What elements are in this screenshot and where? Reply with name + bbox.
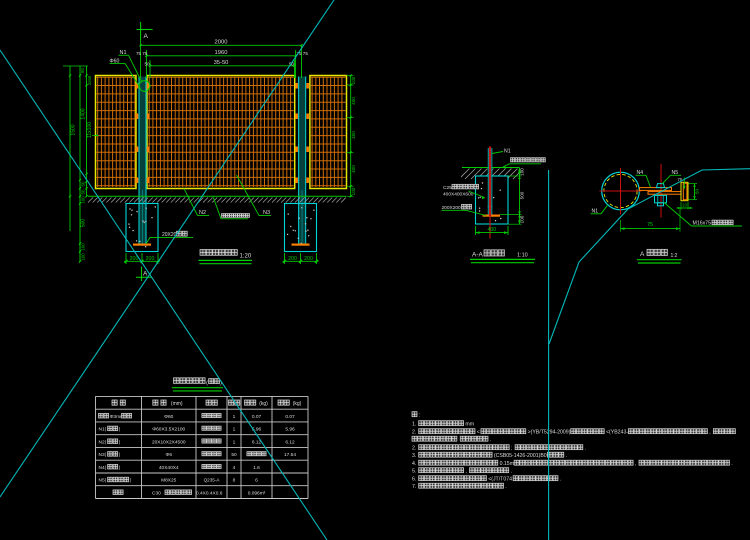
svg-text:50: 50 <box>81 189 86 194</box>
svg-text:Φ60X3.5X2100: Φ60X3.5X2100 <box>152 427 185 433</box>
svg-text:N2: N2 <box>199 210 206 216</box>
svg-text::: : <box>419 413 420 419</box>
svg-text:50: 50 <box>695 189 700 195</box>
svg-text:;: ; <box>511 446 512 452</box>
svg-text:4.: 4. <box>412 461 416 467</box>
svg-text:N1(: N1( <box>99 427 107 433</box>
svg-text:2x50: 2x50 <box>87 75 92 85</box>
svg-text:Φ6: Φ6 <box>166 452 173 458</box>
svg-text:200: 200 <box>304 256 313 262</box>
svg-text:6.12: 6.12 <box>285 439 295 445</box>
svg-text:.: . <box>560 477 561 483</box>
svg-text:400: 400 <box>351 165 356 173</box>
svg-text:(CSB05-1426-2001)B01: (CSB05-1426-2001)B01 <box>494 453 550 459</box>
svg-text:N3(: N3( <box>99 452 107 458</box>
svg-text:mm: mm <box>465 422 474 428</box>
svg-text:75: 75 <box>142 51 148 56</box>
svg-text:20X10X2X4500: 20X10X2X4500 <box>152 439 186 445</box>
svg-text:3.: 3. <box>412 453 416 459</box>
svg-text:1:10: 1:10 <box>517 253 528 259</box>
svg-text:1400: 1400 <box>81 108 87 119</box>
svg-text:(kg): (kg) <box>259 401 268 407</box>
svg-text:5.: 5. <box>412 469 416 475</box>
svg-text:.: . <box>490 437 491 443</box>
svg-text:.: . <box>511 469 512 475</box>
svg-text:200: 200 <box>130 256 139 262</box>
svg-text:(mm): (mm) <box>171 401 183 407</box>
svg-text:0.07: 0.07 <box>285 414 295 420</box>
svg-text:N2(: N2( <box>99 439 107 445</box>
svg-text:,: , <box>635 461 636 467</box>
svg-text:(: ( <box>206 380 208 386</box>
svg-text:75: 75 <box>303 51 309 56</box>
svg-text:N1: N1 <box>504 149 511 155</box>
svg-text:,: , <box>709 430 710 436</box>
svg-text:M8X25: M8X25 <box>161 478 177 484</box>
svg-text:200: 200 <box>146 256 155 262</box>
svg-text:<: < <box>477 430 480 436</box>
svg-text:450: 450 <box>351 131 356 139</box>
svg-text:500: 500 <box>81 219 87 228</box>
svg-text:100: 100 <box>81 196 86 204</box>
svg-text:C25: C25 <box>443 185 452 191</box>
svg-text:1:2: 1:2 <box>671 253 678 259</box>
svg-text:2.: 2. <box>412 446 416 452</box>
svg-text:35-50: 35-50 <box>214 60 229 66</box>
svg-text:A: A <box>144 33 149 40</box>
svg-text:<(JT/T074: <(JT/T074 <box>488 477 512 483</box>
svg-text:(kg): (kg) <box>293 401 302 407</box>
svg-text:1: 1 <box>233 439 236 445</box>
svg-text:100: 100 <box>351 76 356 84</box>
svg-text:6: 6 <box>255 478 258 484</box>
svg-text:0.15m: 0.15m <box>500 461 514 467</box>
svg-text:400: 400 <box>351 97 356 105</box>
svg-text:100: 100 <box>520 215 525 223</box>
svg-text:100: 100 <box>520 168 525 176</box>
svg-text:400: 400 <box>487 227 496 233</box>
svg-text:Q235-A: Q235-A <box>204 478 221 483</box>
svg-text:.: . <box>505 484 506 490</box>
svg-text:4: 4 <box>233 465 236 471</box>
svg-text:8: 8 <box>233 478 236 484</box>
svg-text:.: . <box>731 461 732 467</box>
svg-text:1.: 1. <box>412 422 416 428</box>
svg-text:100: 100 <box>351 187 356 195</box>
svg-text:50: 50 <box>231 452 237 458</box>
svg-text:1960: 1960 <box>215 50 228 56</box>
svg-text:200: 200 <box>288 256 297 262</box>
svg-text:50: 50 <box>81 181 86 186</box>
svg-text:5.96: 5.96 <box>285 427 295 433</box>
svg-text:A: A <box>640 251 645 258</box>
svg-text:50: 50 <box>80 68 85 73</box>
svg-text:Φ60: Φ60 <box>164 414 173 420</box>
svg-text:100: 100 <box>81 253 86 261</box>
svg-text:N3: N3 <box>263 210 270 216</box>
svg-text:1.6: 1.6 <box>253 465 260 471</box>
svg-text:,: , <box>465 469 466 475</box>
svg-text:1: 1 <box>233 427 236 433</box>
svg-text:7.: 7. <box>412 484 416 490</box>
svg-text:40X40X4: 40X40X4 <box>159 465 179 471</box>
svg-text:A-A: A-A <box>472 252 484 259</box>
svg-text:0.07: 0.07 <box>252 414 262 420</box>
svg-text:100: 100 <box>81 243 86 251</box>
svg-text:C30: C30 <box>152 490 161 496</box>
svg-text:.: . <box>566 453 567 459</box>
svg-text:500: 500 <box>520 191 525 199</box>
svg-text:17.54: 17.54 <box>284 452 296 458</box>
svg-text:75: 75 <box>136 51 142 56</box>
svg-text:0.4X0.4X0.6: 0.4X0.4X0.6 <box>196 490 223 496</box>
svg-text:N5(: N5( <box>99 478 107 484</box>
svg-text:2000: 2000 <box>215 40 228 46</box>
svg-text:.: . <box>585 446 586 452</box>
svg-text:1:20: 1:20 <box>240 254 252 260</box>
svg-text:1: 1 <box>233 414 236 420</box>
svg-text:400X400X600: 400X400X600 <box>443 192 474 198</box>
svg-text:0.096m³: 0.096m³ <box>248 490 266 496</box>
svg-text:<(YB243-: <(YB243- <box>606 430 628 436</box>
svg-text:10: 10 <box>682 202 687 207</box>
svg-text:6.: 6. <box>412 477 416 483</box>
svg-text:50: 50 <box>145 61 151 66</box>
svg-text:1500: 1500 <box>71 124 77 135</box>
svg-text:N4(: N4( <box>99 465 107 471</box>
svg-text:75: 75 <box>647 222 653 228</box>
svg-text:2.: 2. <box>412 430 416 436</box>
